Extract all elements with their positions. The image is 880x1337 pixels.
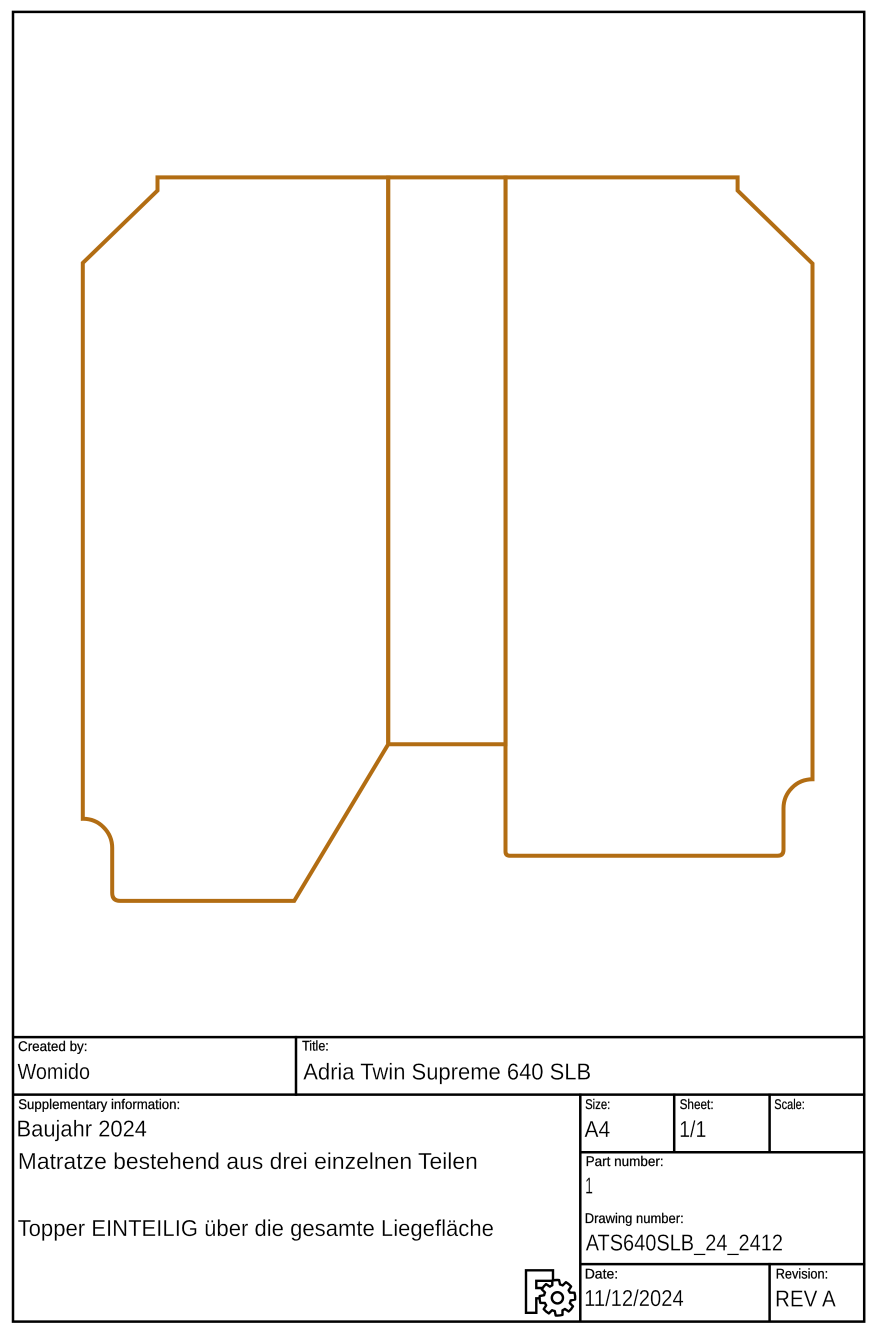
svg-text:Sheet:: Sheet: — [680, 1096, 714, 1112]
svg-text:Womido: Womido — [18, 1059, 91, 1084]
svg-text:Topper EINTEILIG über die gesa: Topper EINTEILIG über die gesamte Liegef… — [18, 1215, 494, 1241]
svg-text:Matratze bestehend aus drei ei: Matratze bestehend aus drei einzelnen Te… — [18, 1148, 478, 1174]
svg-text:Scale:: Scale: — [774, 1096, 805, 1112]
svg-text:Adria Twin Supreme 640 SLB: Adria Twin Supreme 640 SLB — [303, 1058, 591, 1084]
svg-text:A4: A4 — [585, 1116, 611, 1142]
svg-text:Drawing number:: Drawing number: — [585, 1210, 684, 1226]
svg-text:Supplementary information:: Supplementary information: — [18, 1096, 180, 1112]
svg-text:ATS640SLB_24_2412: ATS640SLB_24_2412 — [586, 1229, 783, 1255]
svg-text:REV A: REV A — [775, 1285, 836, 1311]
svg-text:Revision:: Revision: — [776, 1266, 829, 1282]
svg-text:Size:: Size: — [585, 1096, 610, 1112]
svg-text:1: 1 — [585, 1173, 593, 1199]
svg-text:Created by:: Created by: — [18, 1038, 88, 1054]
svg-text:Part number:: Part number: — [586, 1153, 664, 1169]
svg-text:Baujahr 2024: Baujahr 2024 — [17, 1115, 148, 1141]
svg-text:Title:: Title: — [302, 1038, 329, 1054]
svg-text:11/12/2024: 11/12/2024 — [584, 1285, 684, 1311]
svg-text:1/1: 1/1 — [679, 1116, 706, 1142]
svg-text:Date:: Date: — [585, 1266, 619, 1282]
